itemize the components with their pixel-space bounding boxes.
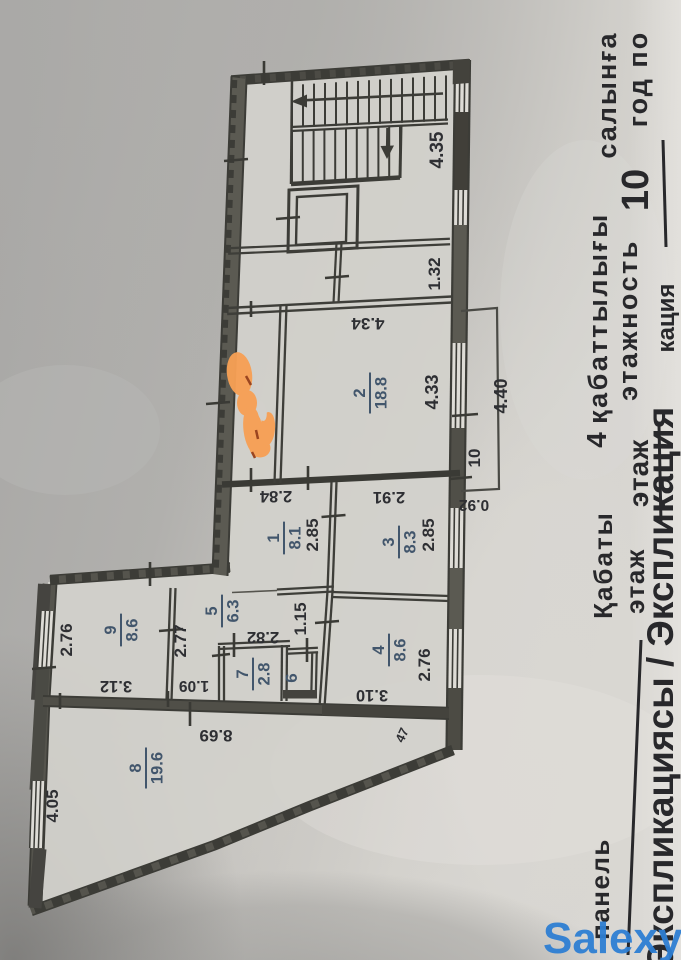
svg-text:1: 1 xyxy=(265,533,283,542)
svg-text:1.09: 1.09 xyxy=(179,677,210,694)
svg-text:2.82: 2.82 xyxy=(247,628,279,646)
svg-text:10: 10 xyxy=(615,169,657,211)
svg-text:2.85: 2.85 xyxy=(419,518,438,551)
svg-text:6: 6 xyxy=(282,673,301,682)
svg-text:қабаттылығы: қабаттылығы xyxy=(583,212,613,424)
svg-text:1.32: 1.32 xyxy=(425,257,444,290)
svg-text:6.3: 6.3 xyxy=(225,600,243,623)
svg-text:0.92: 0.92 xyxy=(459,496,489,513)
svg-text:кация: кация xyxy=(653,284,680,353)
svg-text:19.6: 19.6 xyxy=(149,752,167,784)
svg-text:салынға: салынға xyxy=(592,31,622,158)
svg-text:Salexy: Salexy xyxy=(543,914,681,960)
svg-text:2.8: 2.8 xyxy=(256,663,274,686)
svg-text:2.76: 2.76 xyxy=(57,623,76,656)
svg-text:4.34: 4.34 xyxy=(351,314,385,333)
svg-text:2.76: 2.76 xyxy=(415,648,434,681)
svg-text:8.1: 8.1 xyxy=(287,527,305,550)
svg-text:4.33: 4.33 xyxy=(422,374,442,409)
svg-text:3.12: 3.12 xyxy=(100,677,132,695)
svg-text:9: 9 xyxy=(102,625,120,634)
svg-text:8: 8 xyxy=(127,763,145,772)
svg-text:Қабаты: Қабаты xyxy=(588,511,618,619)
svg-text:8.6: 8.6 xyxy=(392,639,410,662)
svg-text:8.69: 8.69 xyxy=(199,726,232,745)
svg-text:2.77: 2.77 xyxy=(171,624,190,657)
svg-text:2: 2 xyxy=(351,388,369,397)
svg-text:5: 5 xyxy=(203,606,221,615)
svg-text:Экспликациясы / Экспликация: Экспликациясы / Экспликация xyxy=(640,407,681,960)
svg-text:2.91: 2.91 xyxy=(373,488,405,506)
svg-text:4: 4 xyxy=(581,432,612,448)
svg-text:8.3: 8.3 xyxy=(402,531,420,554)
svg-text:год по: год по xyxy=(623,31,653,127)
svg-text:8.6: 8.6 xyxy=(124,619,142,642)
svg-text:3.10: 3.10 xyxy=(356,686,388,704)
svg-text:4.40: 4.40 xyxy=(491,378,511,413)
svg-text:этажность: этажность xyxy=(613,239,643,401)
svg-text:4.05: 4.05 xyxy=(43,789,62,822)
svg-text:4.35: 4.35 xyxy=(427,131,448,168)
svg-text:7: 7 xyxy=(234,669,252,678)
svg-text:4: 4 xyxy=(370,645,388,655)
svg-text:2.85: 2.85 xyxy=(303,518,322,551)
svg-text:3: 3 xyxy=(380,537,398,546)
svg-text:10: 10 xyxy=(465,449,484,468)
svg-text:2.84: 2.84 xyxy=(259,487,292,505)
svg-text:1.15: 1.15 xyxy=(291,602,310,635)
svg-text:18.8: 18.8 xyxy=(373,377,391,409)
